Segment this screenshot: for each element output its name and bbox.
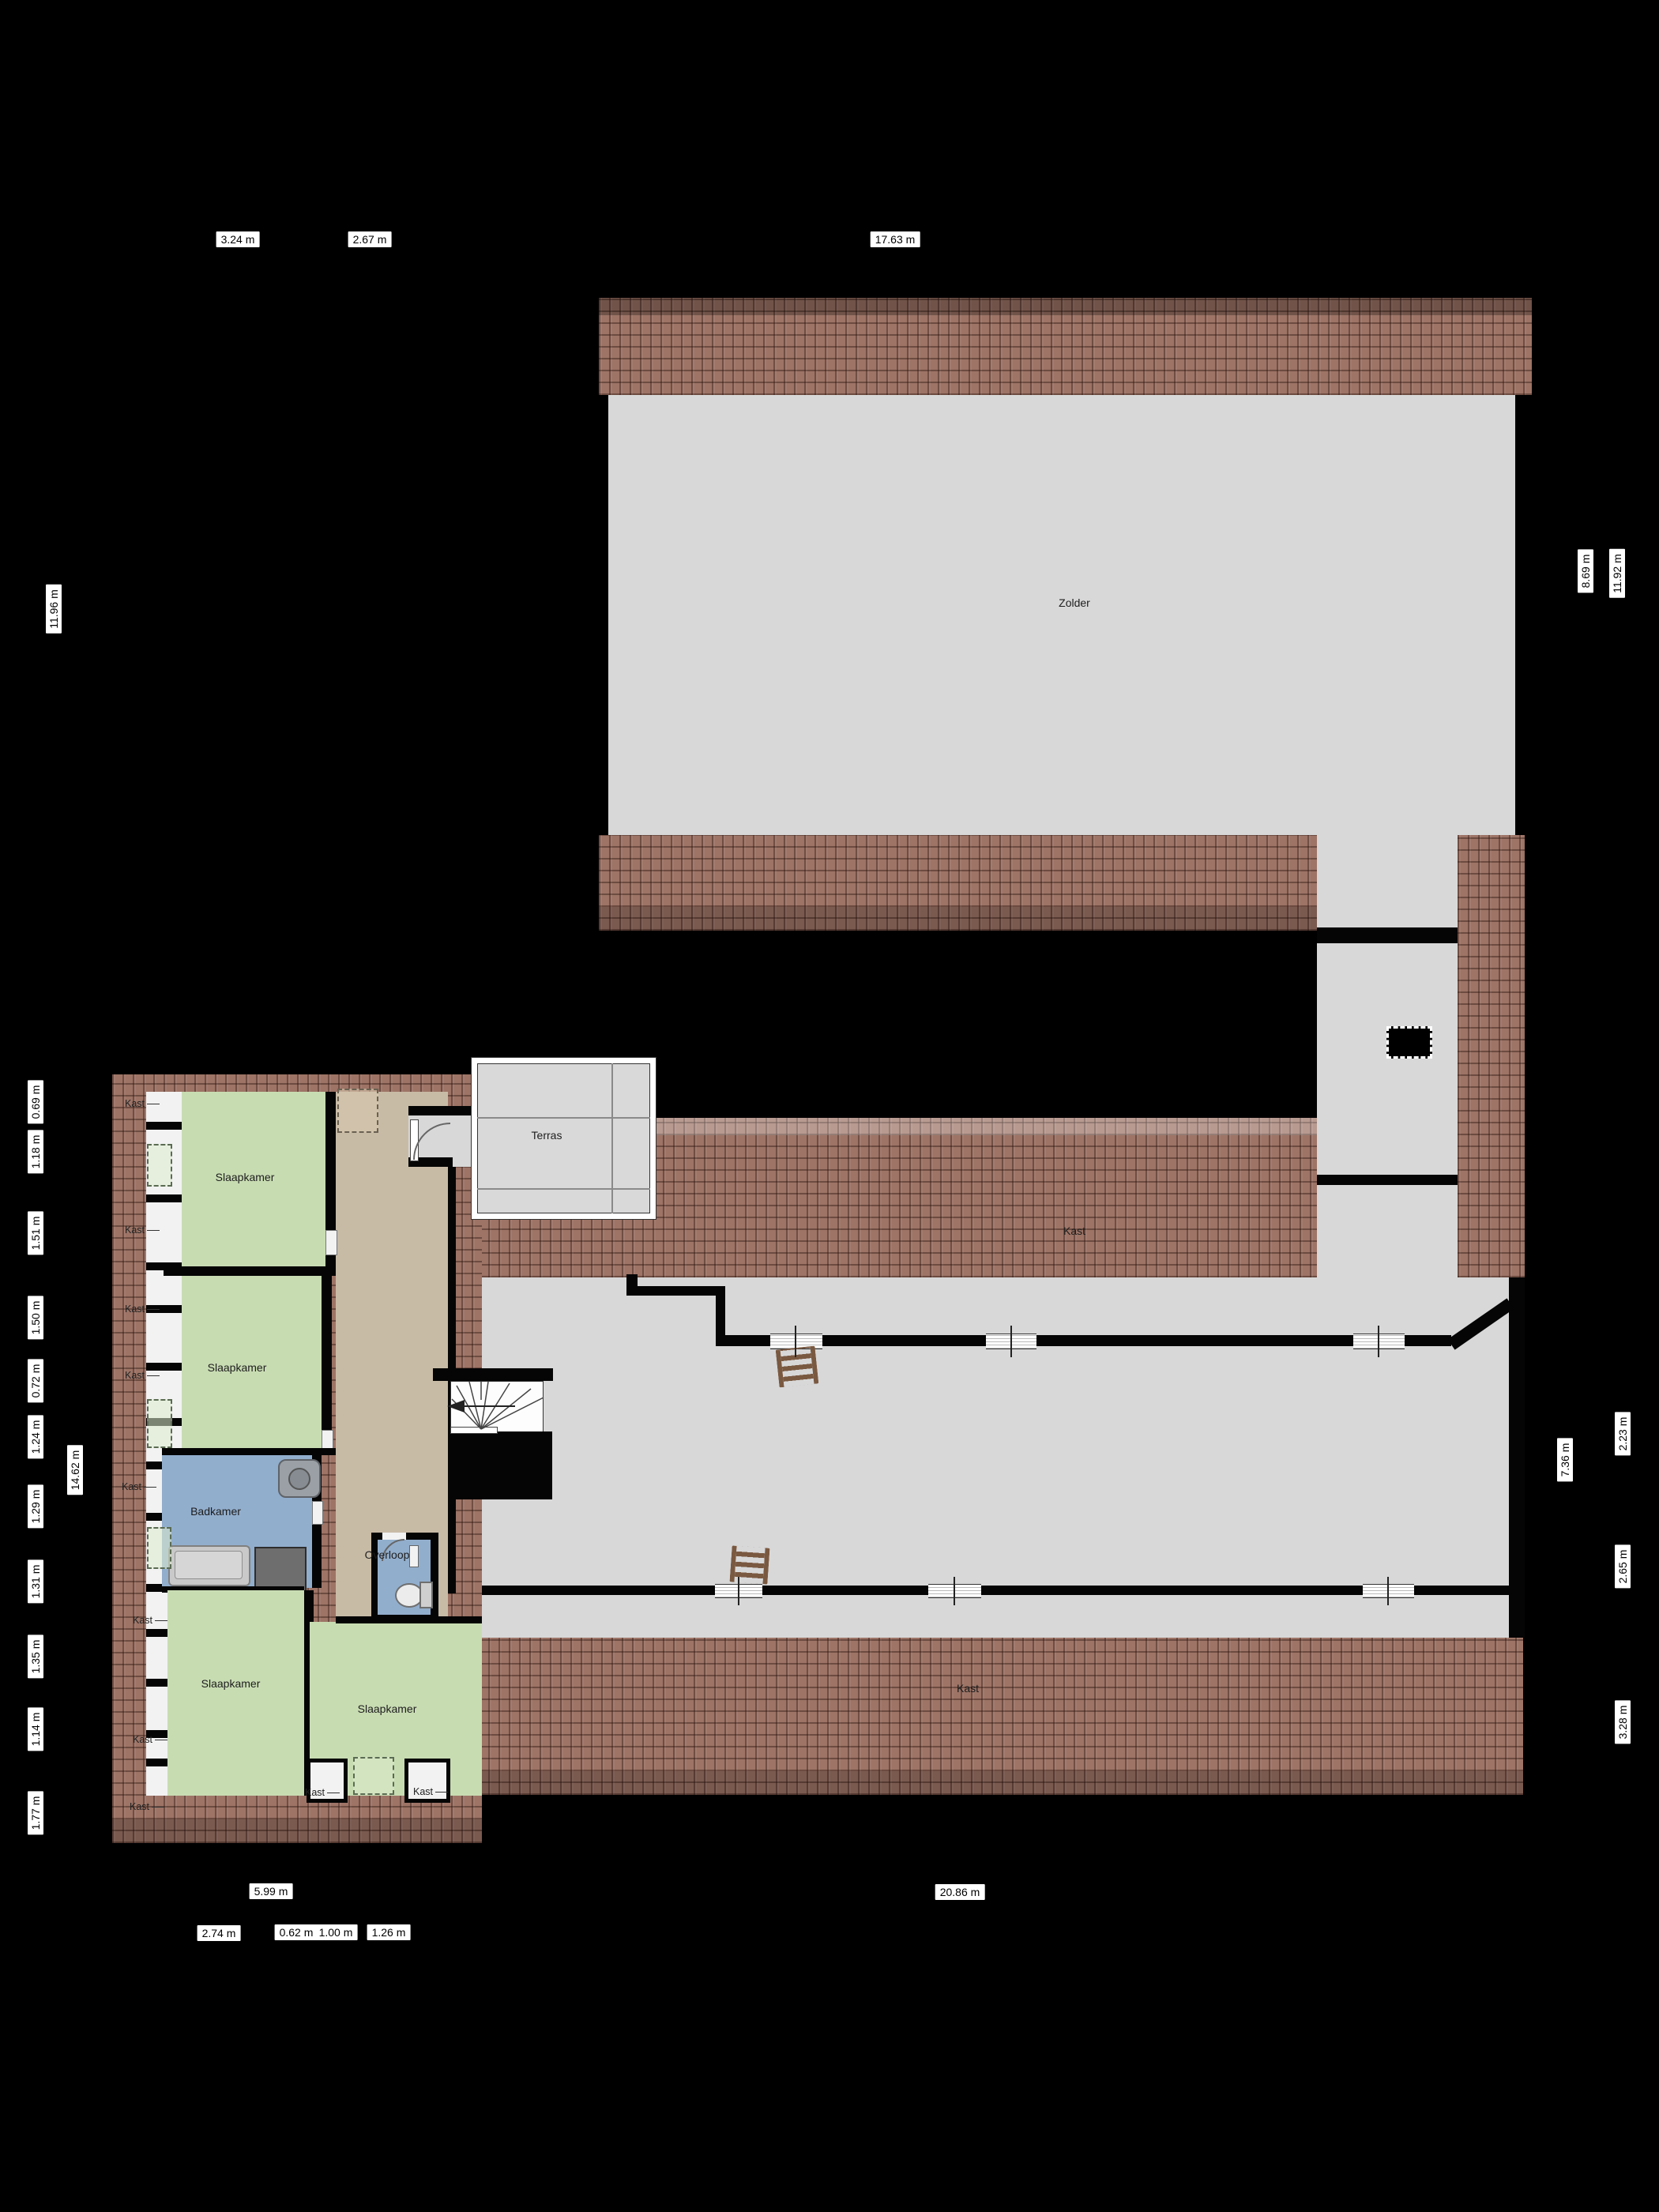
closet-label-kast: Kast: [125, 1224, 160, 1236]
room-label-kast: Kast: [957, 1682, 979, 1695]
room-label-slaapkamer: Slaapkamer: [216, 1171, 275, 1183]
dimension-label: 1.50 m: [28, 1296, 43, 1340]
dimension-label: 1.29 m: [28, 1485, 43, 1529]
dimension-label: 1.51 m: [28, 1212, 43, 1255]
dimension-label: 1.26 m: [367, 1924, 411, 1940]
dimension-label: 7.36 m: [1557, 1439, 1573, 1482]
closet-label-kast: Kast: [125, 1370, 160, 1381]
diagonal-wall: [1451, 1303, 1510, 1345]
room-label-overloop: Overloop: [365, 1548, 410, 1561]
dimension-label: 3.28 m: [1615, 1701, 1631, 1744]
closet-label-kast: Kast: [133, 1615, 167, 1626]
dimension-label: 11.92 m: [1609, 549, 1625, 598]
dimension-label: 3.24 m: [216, 231, 260, 247]
closet-label-kast: Kast: [133, 1734, 167, 1745]
dimension-label: 0.72 m: [28, 1360, 43, 1403]
dimension-label: 1.14 m: [28, 1708, 43, 1751]
room-label-slaapkamer: Slaapkamer: [358, 1702, 417, 1715]
stairs-direction-arrow: [447, 1400, 515, 1413]
dimension-label: 2.74 m: [197, 1925, 241, 1941]
vector-details: [0, 0, 1659, 2212]
door-arc: [414, 1123, 450, 1160]
dimension-label: 20.86 m: [935, 1884, 985, 1900]
dimension-label: 0.62 m: [275, 1924, 318, 1940]
window-ticks: [739, 1326, 1388, 1605]
room-label-slaapkamer: Slaapkamer: [208, 1361, 267, 1374]
room-label-kast: Kast: [1063, 1224, 1085, 1237]
closet-label-kast: Kast: [125, 1303, 160, 1315]
dimension-label: 1.24 m: [28, 1416, 43, 1459]
dimension-label: 2.23 m: [1615, 1413, 1631, 1456]
floorplan-canvas: ZolderTerrasKastKastSlaapkamerSlaapkamer…: [0, 0, 1659, 2212]
closet-label-kast: Kast: [125, 1098, 160, 1109]
dimension-label: 11.96 m: [46, 585, 62, 634]
dimension-label: 2.65 m: [1615, 1545, 1631, 1589]
dimension-label: 17.63 m: [871, 231, 920, 247]
dimension-label: 5.99 m: [250, 1883, 293, 1899]
dimension-label: 14.62 m: [67, 1446, 83, 1495]
dimension-label: 2.67 m: [348, 231, 392, 247]
room-label-slaapkamer: Slaapkamer: [201, 1677, 261, 1690]
dimension-label: 1.31 m: [28, 1560, 43, 1604]
closet-label-kast: Kast: [122, 1481, 156, 1492]
closet-label-kast: Kast: [413, 1786, 448, 1797]
dimension-label: 1.00 m: [314, 1924, 358, 1940]
room-label-zolder: Zolder: [1059, 596, 1090, 609]
closet-label-kast: Kast: [130, 1801, 164, 1812]
dimension-label: 1.35 m: [28, 1635, 43, 1679]
dimension-label: 1.77 m: [28, 1792, 43, 1835]
room-label-badkamer: Badkamer: [190, 1505, 241, 1518]
dimension-label: 0.69 m: [28, 1081, 43, 1124]
room-label-terras: Terras: [532, 1129, 562, 1142]
dimension-label: 1.18 m: [28, 1130, 43, 1174]
closet-label-kast: Kast: [305, 1787, 340, 1798]
dimension-label: 8.69 m: [1578, 550, 1593, 593]
